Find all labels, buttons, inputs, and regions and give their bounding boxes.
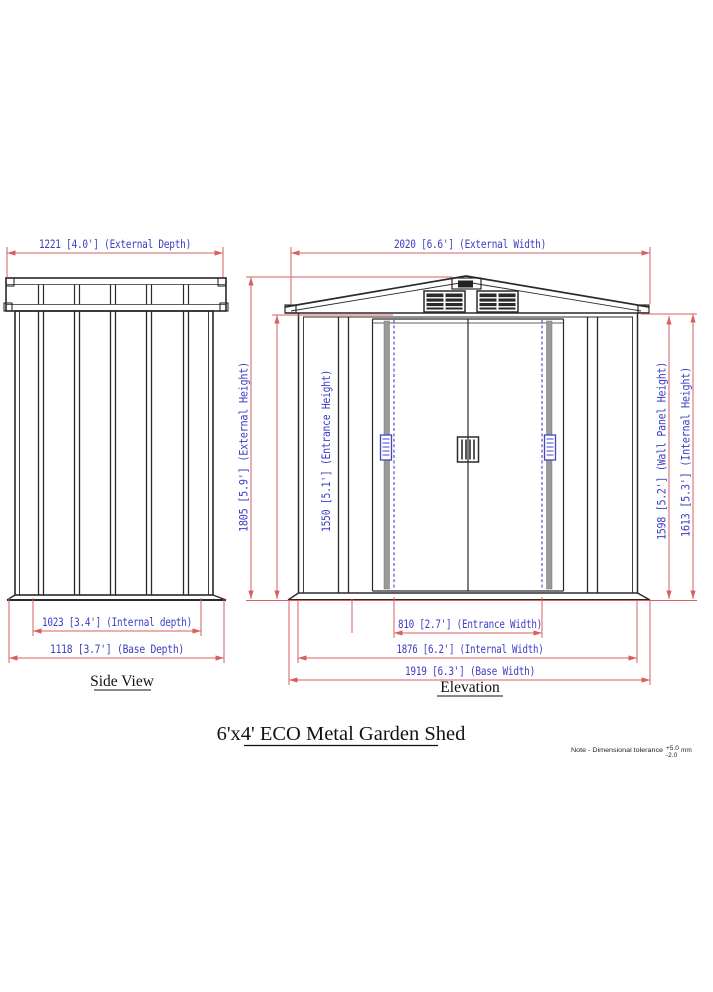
side-internal-depth-dimension: 1023 [3.4'] (Internal depth): [42, 615, 192, 629]
elevation-external-height-dimension: 1805 [5.9'] (External Height): [237, 362, 251, 532]
elevation-external-width-dimension: 2020 [6.6'] (External Width): [394, 237, 546, 251]
tolerance-note-text: Note - Dimensional tolerance: [571, 747, 663, 754]
elevation-base-width-dimension: 1919 [6.3'] (Base Width): [405, 664, 535, 678]
elevation-base: [288, 593, 650, 600]
sliding-doors: [373, 319, 564, 591]
elevation-internal-height-dimension: 1613 [5.3'] (Internal Height): [679, 367, 693, 537]
side-view-drawing: [4, 278, 228, 600]
side-wall-ribs: [39, 311, 189, 595]
shed-technical-drawing: 1221 [4.0'] (External Depth) 1023 [3.4']…: [0, 0, 713, 992]
roof-vent-right-icon: [477, 291, 518, 312]
elevation-internal-width-dimension: 1876 [6.2'] (Internal Width): [397, 642, 544, 656]
ridge-cap-vent-icon: [458, 281, 473, 288]
elevation-entrance-width-dimension: 810 [2.7'] (Entrance Width): [398, 617, 542, 631]
elevation-wall-panel-height-dimension: 1598 [5.2'] (Wall Panel Height): [655, 362, 669, 540]
side-base-depth-dimension: 1118 [3.7'] (Base Depth): [50, 642, 184, 656]
side-view-label: Side View: [90, 673, 155, 690]
elevation-label: Elevation: [440, 679, 500, 696]
drawing-svg: 1221 [4.0'] (External Depth) 1023 [3.4']…: [0, 0, 713, 992]
roof-vent-left-icon: [424, 291, 465, 312]
door-edge-handle-left-icon: [381, 435, 392, 460]
door-edge-handle-right-icon: [545, 435, 556, 460]
drawing-title: 6'x4' ECO Metal Garden Shed: [217, 723, 466, 745]
tolerance-note: Note - Dimensional tolerance +5.0 -2.0 m…: [571, 745, 692, 759]
elevation-entrance-height-dimension: 1550 [5.1'] (Entrance Height): [319, 370, 333, 532]
tolerance-plus-value: +5.0: [666, 745, 679, 752]
tolerance-unit: mm: [681, 747, 692, 754]
side-external-depth-dimension: 1221 [4.0'] (External Depth): [39, 237, 191, 251]
side-roof-band-ribs: [39, 285, 189, 305]
tolerance-minus-value: -2.0: [666, 752, 678, 759]
elevation-drawing: [285, 276, 650, 600]
